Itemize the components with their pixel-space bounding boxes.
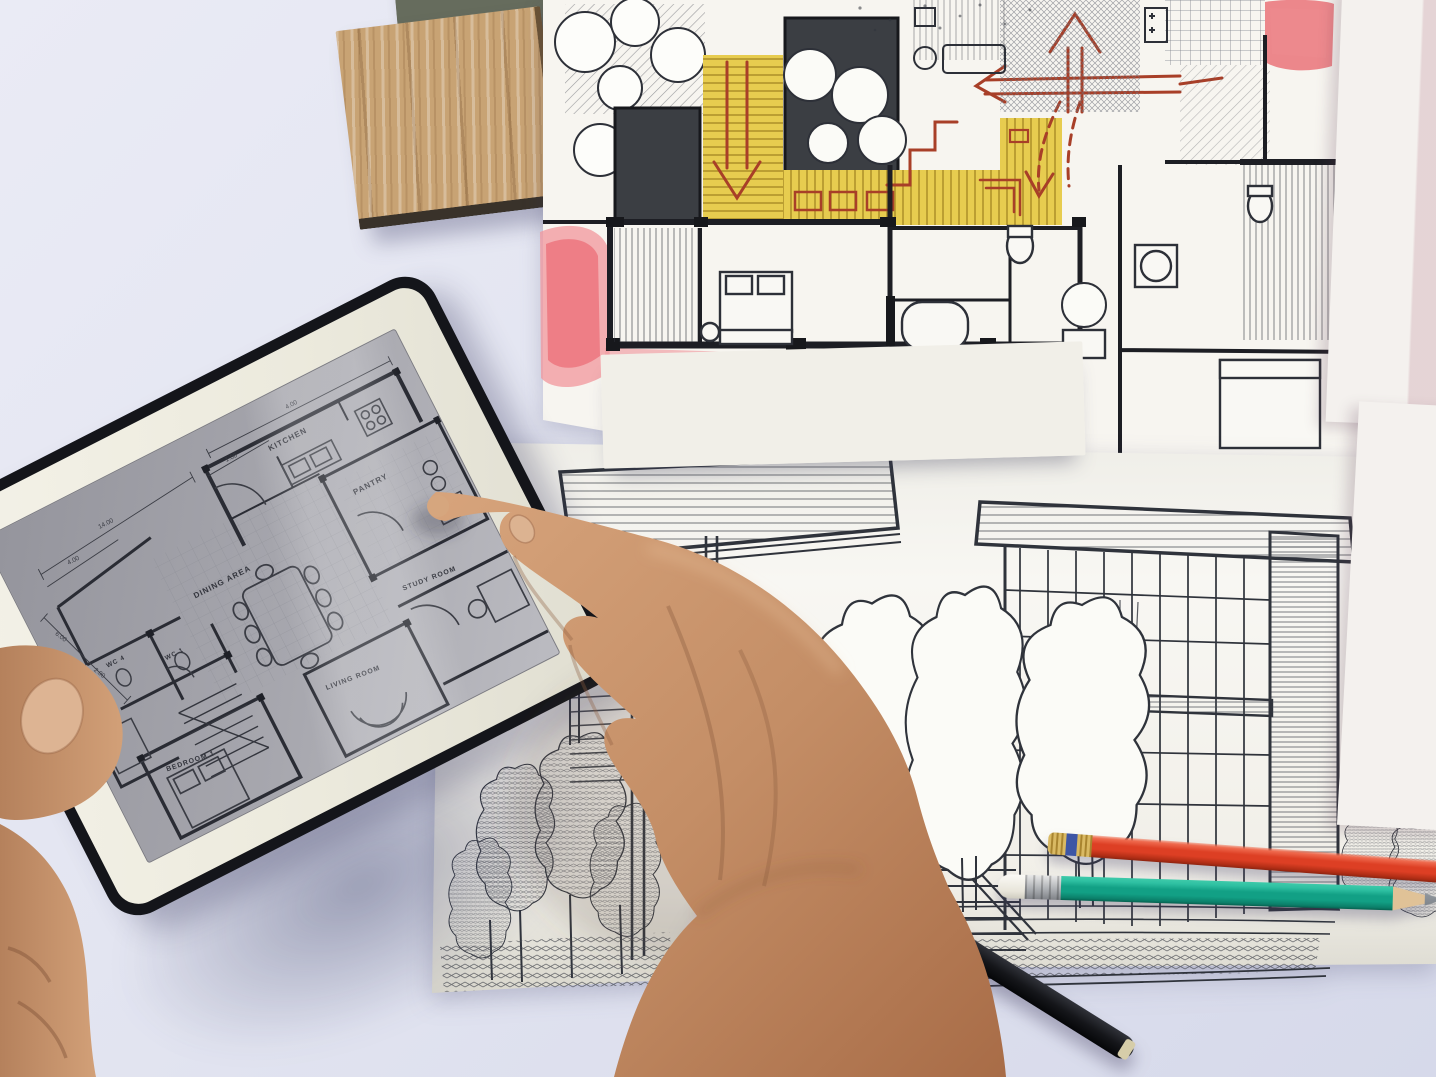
workspace-photo: KITCHEN PANTRY DINING AREA WC 4 WC 1 MAI… (0, 0, 1436, 1077)
hands-overlay (0, 0, 1436, 1077)
